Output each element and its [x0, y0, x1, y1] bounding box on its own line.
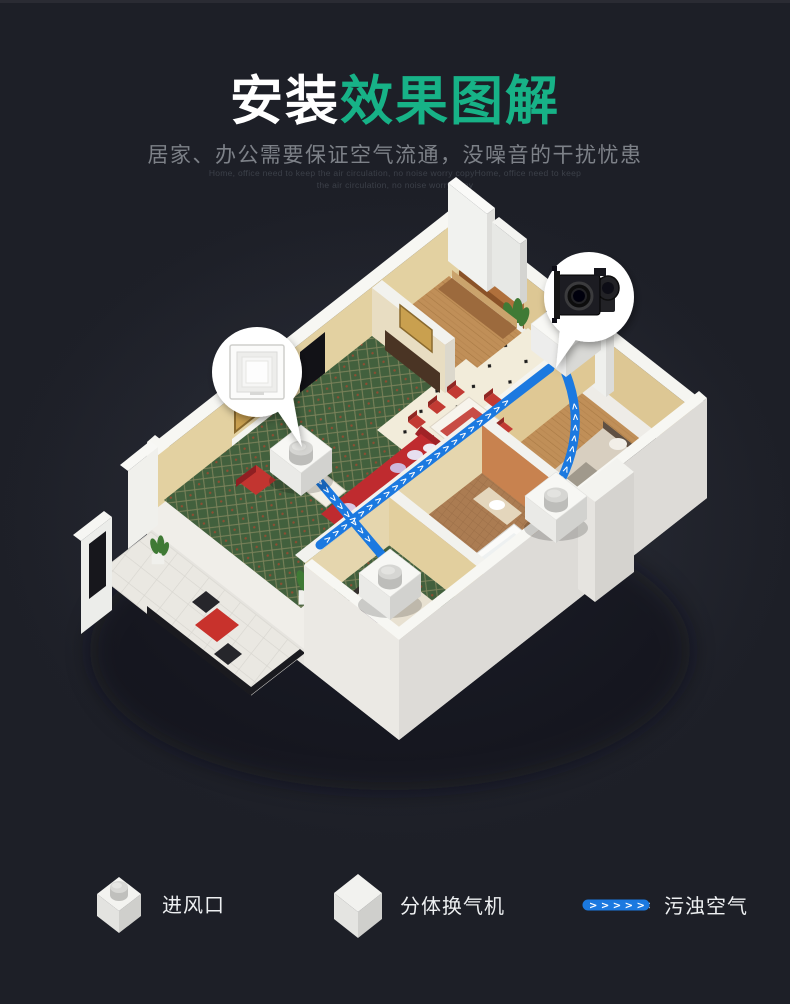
- floorplan-illustration: > > > > > > > > > > > > > > > > > > > > …: [0, 0, 790, 1004]
- air-inlet-cube-icon: [90, 870, 148, 936]
- airflow-arrow-icon: >>>>>>: [582, 896, 650, 914]
- air-inlet-panel-icon: [230, 345, 284, 399]
- legend-label: 污浊空气: [664, 890, 748, 919]
- legend-item-split-ventilator: 分体换气机: [330, 868, 505, 940]
- svg-text:>>>>>>: >>>>>>: [589, 900, 650, 911]
- legend: 进风口 分体换气机 >>>>>> 污浊空气: [0, 862, 790, 952]
- legend-item-air-inlet: 进风口: [90, 870, 225, 936]
- split-ventilator-cube-icon: [330, 868, 386, 940]
- legend-item-polluted-air: >>>>>> 污浊空气: [582, 890, 748, 919]
- legend-label: 进风口: [162, 889, 225, 918]
- page: 安装效果图解 居家、办公需要保证空气流通，没噪音的干扰忧患 Home, offi…: [0, 0, 790, 1004]
- legend-label: 分体换气机: [400, 890, 505, 919]
